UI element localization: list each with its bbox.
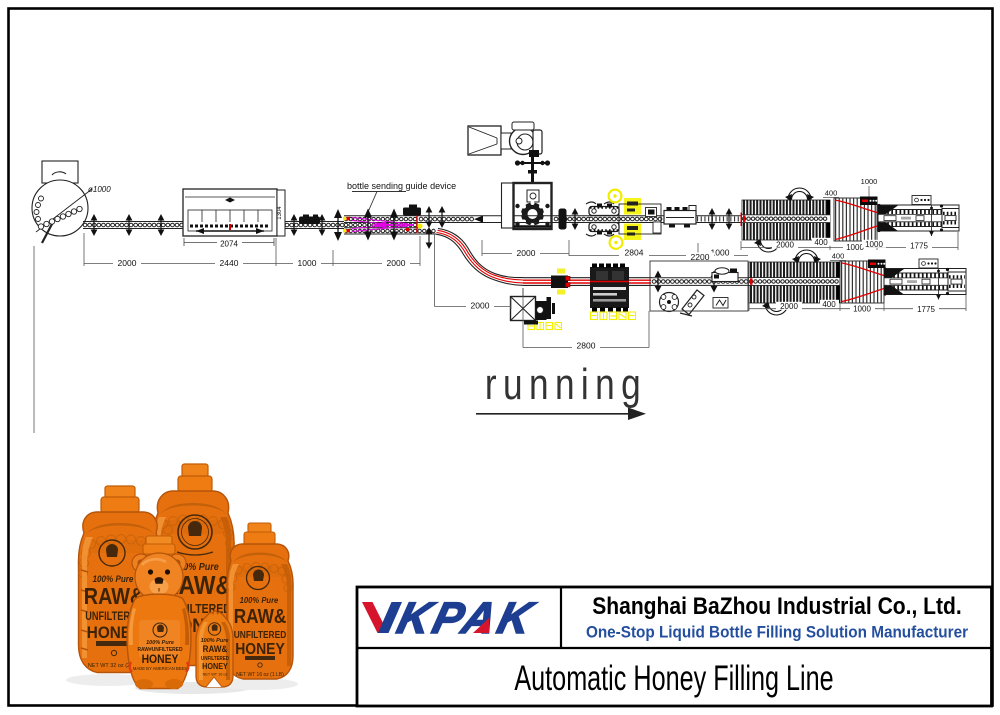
svg-text:ø1000: ø1000	[88, 185, 111, 194]
svg-text:HONEY: HONEY	[142, 654, 179, 667]
svg-text:Shanghai BaZhou Industrial Co.: Shanghai BaZhou Industrial Co., Ltd.	[592, 591, 962, 619]
svg-text:RAW&: RAW&	[203, 643, 228, 654]
svg-text:NET WT 10 oz: NET WT 10 oz	[203, 673, 228, 677]
svg-text:2200: 2200	[691, 252, 710, 262]
svg-text:400: 400	[832, 252, 845, 261]
svg-text:1000: 1000	[298, 258, 317, 268]
svg-text:Automatic Honey Filling Line: Automatic Honey Filling Line	[514, 659, 833, 698]
svg-text:HONEY: HONEY	[202, 661, 228, 671]
svg-text:2000: 2000	[776, 241, 794, 250]
svg-text:1775: 1775	[910, 242, 928, 251]
svg-text:400: 400	[814, 238, 828, 247]
svg-text:MADE BY AMERICAN BEES: MADE BY AMERICAN BEES	[133, 666, 187, 671]
svg-text:2000: 2000	[780, 302, 798, 311]
svg-text:2000: 2000	[517, 248, 536, 258]
svg-text:2804: 2804	[625, 247, 644, 257]
svg-text:2074: 2074	[220, 240, 238, 249]
svg-text:1304: 1304	[277, 206, 283, 220]
svg-text:400: 400	[825, 189, 838, 198]
svg-text:KPAK: KPAK	[393, 595, 540, 643]
svg-text:UNFILTERED: UNFILTERED	[234, 629, 287, 641]
svg-text:HONEY: HONEY	[235, 641, 285, 658]
svg-text:bottle sending guide device: bottle sending guide device	[347, 181, 456, 191]
svg-text:1000: 1000	[861, 177, 878, 186]
svg-text:1000: 1000	[853, 305, 871, 314]
svg-text:100% Pure: 100% Pure	[93, 574, 134, 585]
svg-text:One-Stop Liquid Bottle Filling: One-Stop Liquid Bottle Filling Solution …	[586, 623, 969, 642]
svg-text:400: 400	[822, 300, 836, 309]
svg-text:2000: 2000	[118, 258, 137, 268]
svg-text:NET WT 16 oz (1 LB): NET WT 16 oz (1 LB)	[236, 672, 284, 678]
svg-text:1775: 1775	[917, 305, 935, 314]
svg-text:2000: 2000	[471, 300, 490, 310]
svg-text:2000: 2000	[387, 258, 406, 268]
svg-text:2440: 2440	[220, 258, 239, 268]
svg-text:100% Pure: 100% Pure	[146, 640, 174, 646]
svg-text:RAW&: RAW&	[234, 605, 287, 628]
svg-text:1000: 1000	[865, 240, 883, 249]
svg-text:100% Pure: 100% Pure	[240, 596, 279, 605]
svg-text:RAW#UNFILTERED: RAW#UNFILTERED	[137, 647, 182, 653]
svg-text:running: running	[485, 360, 647, 409]
svg-text:1000: 1000	[846, 243, 864, 252]
svg-text:2800: 2800	[577, 340, 596, 350]
